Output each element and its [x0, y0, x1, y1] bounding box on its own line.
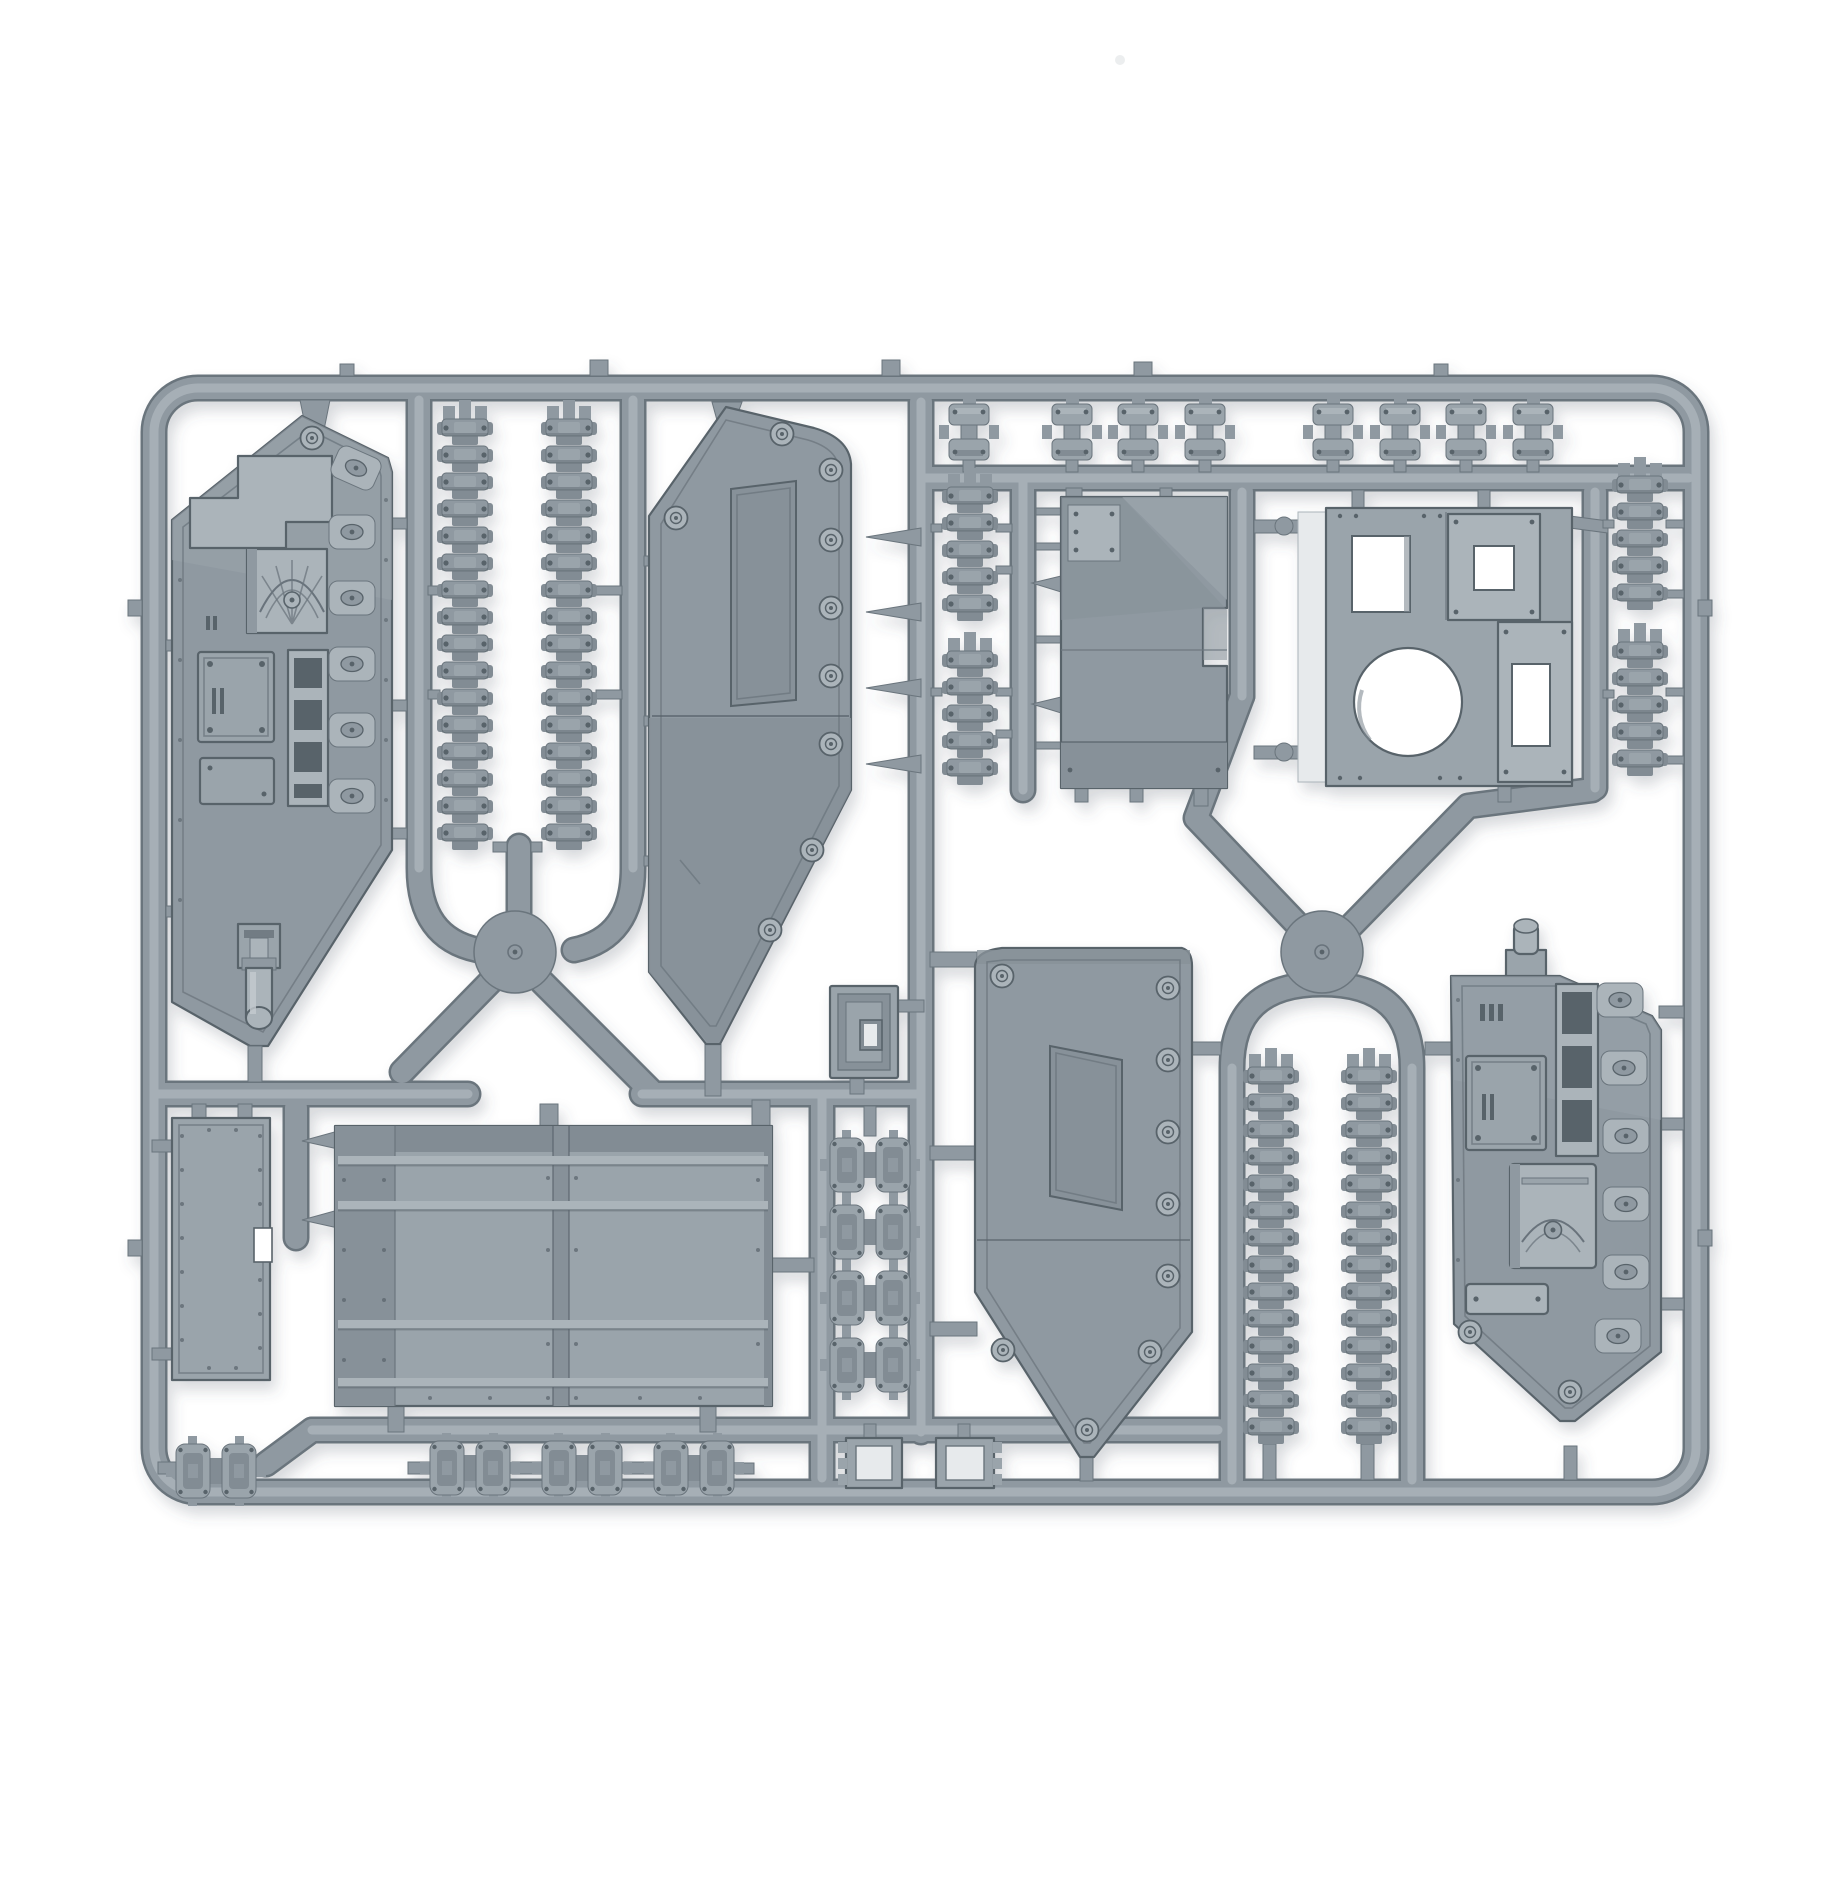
rail-stub — [1434, 364, 1448, 376]
small-access-hatch — [830, 986, 898, 1078]
hull-side-panel-right — [1451, 919, 1661, 1421]
track-run-short-right-1 — [1612, 457, 1668, 610]
rail-stub — [590, 360, 608, 376]
rail-stub — [340, 364, 354, 376]
rail-stub — [128, 600, 142, 616]
rail-stub — [882, 360, 900, 376]
track-run-short-mid-1 — [942, 468, 998, 621]
side-skirt-panel — [172, 1118, 272, 1380]
runner-hub-left — [474, 911, 556, 993]
rail-stub — [128, 1240, 142, 1256]
runner-hub-right — [1281, 911, 1363, 993]
turret-mounting-plate — [1298, 508, 1572, 786]
sprue-photo — [0, 0, 1840, 1900]
ramp-floor-panel — [335, 1126, 772, 1406]
photo-canvas — [0, 0, 1840, 1900]
rail-stub — [1698, 600, 1712, 616]
rail-stub — [1134, 362, 1152, 376]
track-run-short-right-2 — [1612, 623, 1668, 776]
track-run-short-mid-2 — [942, 632, 998, 785]
rail-stub — [1698, 1230, 1712, 1246]
photo-speck — [1115, 55, 1125, 65]
glacis-armour-plate — [1061, 497, 1227, 788]
